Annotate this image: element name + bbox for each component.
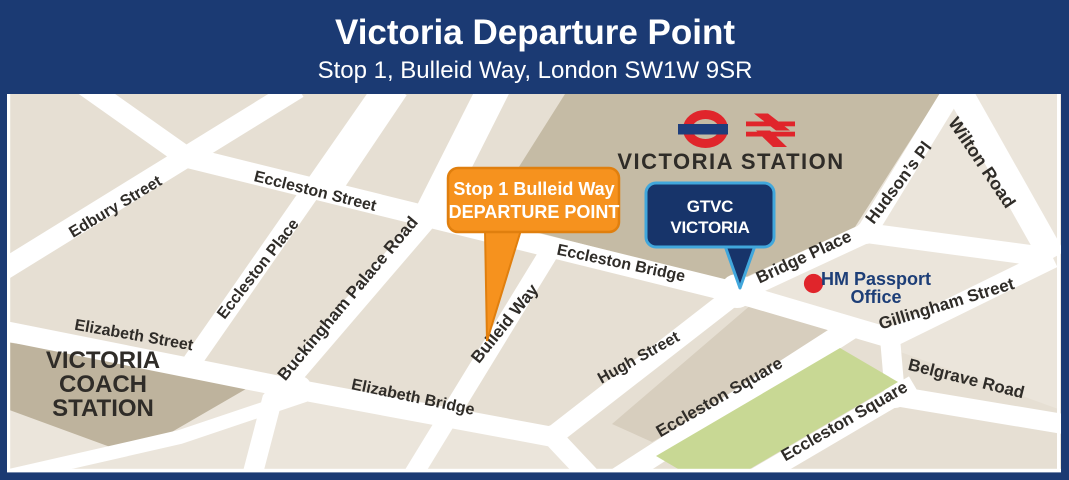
- svg-text:COACH: COACH: [59, 371, 147, 398]
- svg-text:VICTORIA: VICTORIA: [670, 218, 749, 237]
- svg-text:Office: Office: [850, 287, 901, 307]
- svg-text:HM Passport: HM Passport: [821, 269, 931, 289]
- svg-text:Victoria Departure Point: Victoria Departure Point: [335, 13, 735, 52]
- svg-text:GTVC: GTVC: [687, 197, 733, 216]
- svg-text:DEPARTURE POINT: DEPARTURE POINT: [449, 202, 620, 222]
- svg-text:VICTORIA: VICTORIA: [46, 347, 160, 374]
- svg-text:Stop 1, Bulleid Way, London SW: Stop 1, Bulleid Way, London SW1W 9SR: [318, 57, 753, 84]
- svg-text:Stop 1 Bulleid Way: Stop 1 Bulleid Way: [453, 179, 614, 199]
- svg-text:VICTORIA STATION: VICTORIA STATION: [617, 149, 844, 174]
- svg-text:STATION: STATION: [52, 395, 154, 422]
